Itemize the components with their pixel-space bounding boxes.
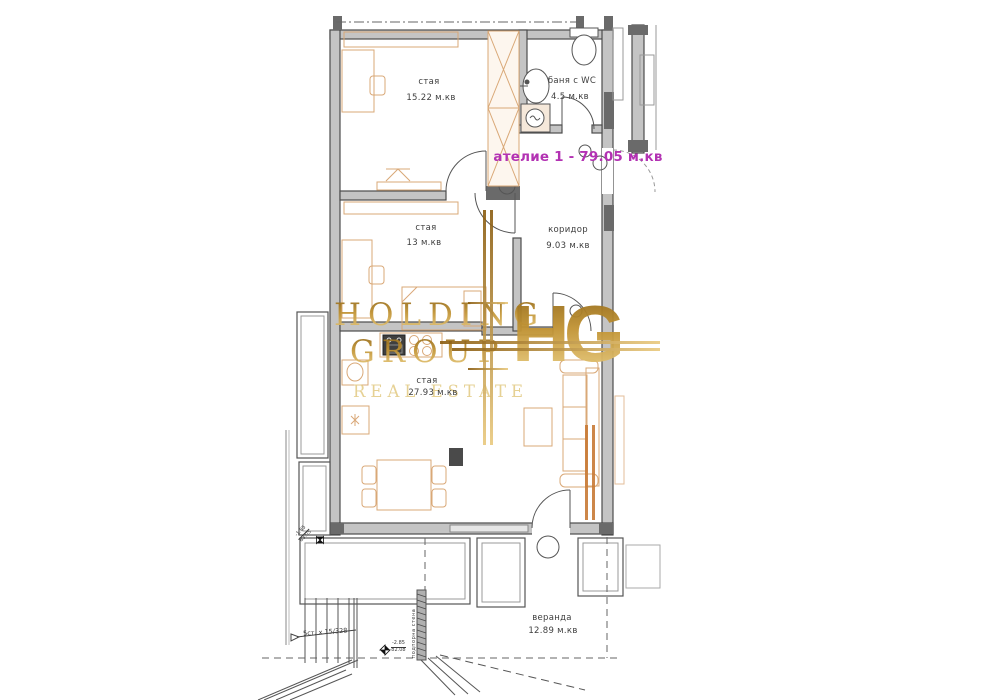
- bathroom-name: баня с WC: [548, 76, 596, 86]
- corridor-name: коридор: [548, 225, 588, 235]
- veranda-name: веранда: [532, 613, 572, 623]
- stairs-arrow: [291, 634, 299, 641]
- retaining-wall-label: подпорна стена: [412, 609, 418, 658]
- chair-icon: [362, 489, 376, 507]
- watermark-line: [452, 348, 660, 351]
- door-arc-room1: [446, 151, 486, 191]
- desk-icon: [342, 50, 374, 112]
- neighbor-bench-icon: [615, 396, 624, 484]
- chair-icon: [432, 489, 446, 507]
- watermark-line: [490, 210, 493, 445]
- retaining-wall-icon: [417, 590, 426, 660]
- watermark-line: [585, 425, 588, 520]
- room-middle-name: стая: [415, 223, 436, 233]
- watermark-line: [483, 210, 486, 445]
- veranda-area: 12.89 м.кв: [528, 626, 577, 636]
- watermark-line: [468, 368, 508, 370]
- room-top-name: стая: [418, 77, 439, 87]
- slope-hatch: [258, 655, 585, 700]
- chair-icon: [370, 76, 385, 95]
- wall-left: [330, 30, 340, 535]
- tv-icon: [449, 448, 463, 466]
- room-top-area: 15.22 м.кв: [406, 93, 455, 103]
- watermark-line: [592, 425, 595, 520]
- dining-table-icon: [377, 460, 431, 510]
- side-table-icon: [524, 408, 552, 446]
- living-room-name: стая: [416, 376, 437, 386]
- watermark-line: [440, 341, 660, 344]
- window-hatch-2: [604, 205, 614, 231]
- chair-icon: [432, 466, 446, 484]
- veranda-door-handle: [537, 536, 559, 558]
- bathroom-area: 4.5 м.кв: [551, 92, 589, 102]
- room-middle-area: 13 м.кв: [407, 238, 442, 248]
- watermark-line: [468, 302, 508, 304]
- wall-neighbor: [632, 25, 644, 153]
- walls-group: [330, 25, 644, 535]
- floorplan-page: HOLDING GROUP REAL ESTATE HG стая 15.22 …: [0, 0, 990, 700]
- watermark-hg-monogram: HG: [512, 288, 620, 380]
- chair-icon: [362, 466, 376, 484]
- tv-stand-icon: [377, 182, 441, 190]
- window-bottom: [450, 525, 528, 532]
- room1-furniture: [342, 32, 458, 190]
- wall-room1-room2: [340, 191, 446, 200]
- dining-set: [362, 460, 446, 510]
- corridor-area: 9.03 м.кв: [546, 241, 590, 251]
- shelf-icon: [344, 202, 458, 214]
- level-marker-2-label: -2.85 82.08: [391, 641, 406, 653]
- living-room-area: 27.93 м.кв: [408, 388, 457, 398]
- unit-label: ателие 1 - 79.05 м.кв: [493, 149, 662, 165]
- toilet-icon: [572, 35, 596, 65]
- terrace-boxes: [300, 538, 660, 607]
- chair-icon: [369, 266, 384, 284]
